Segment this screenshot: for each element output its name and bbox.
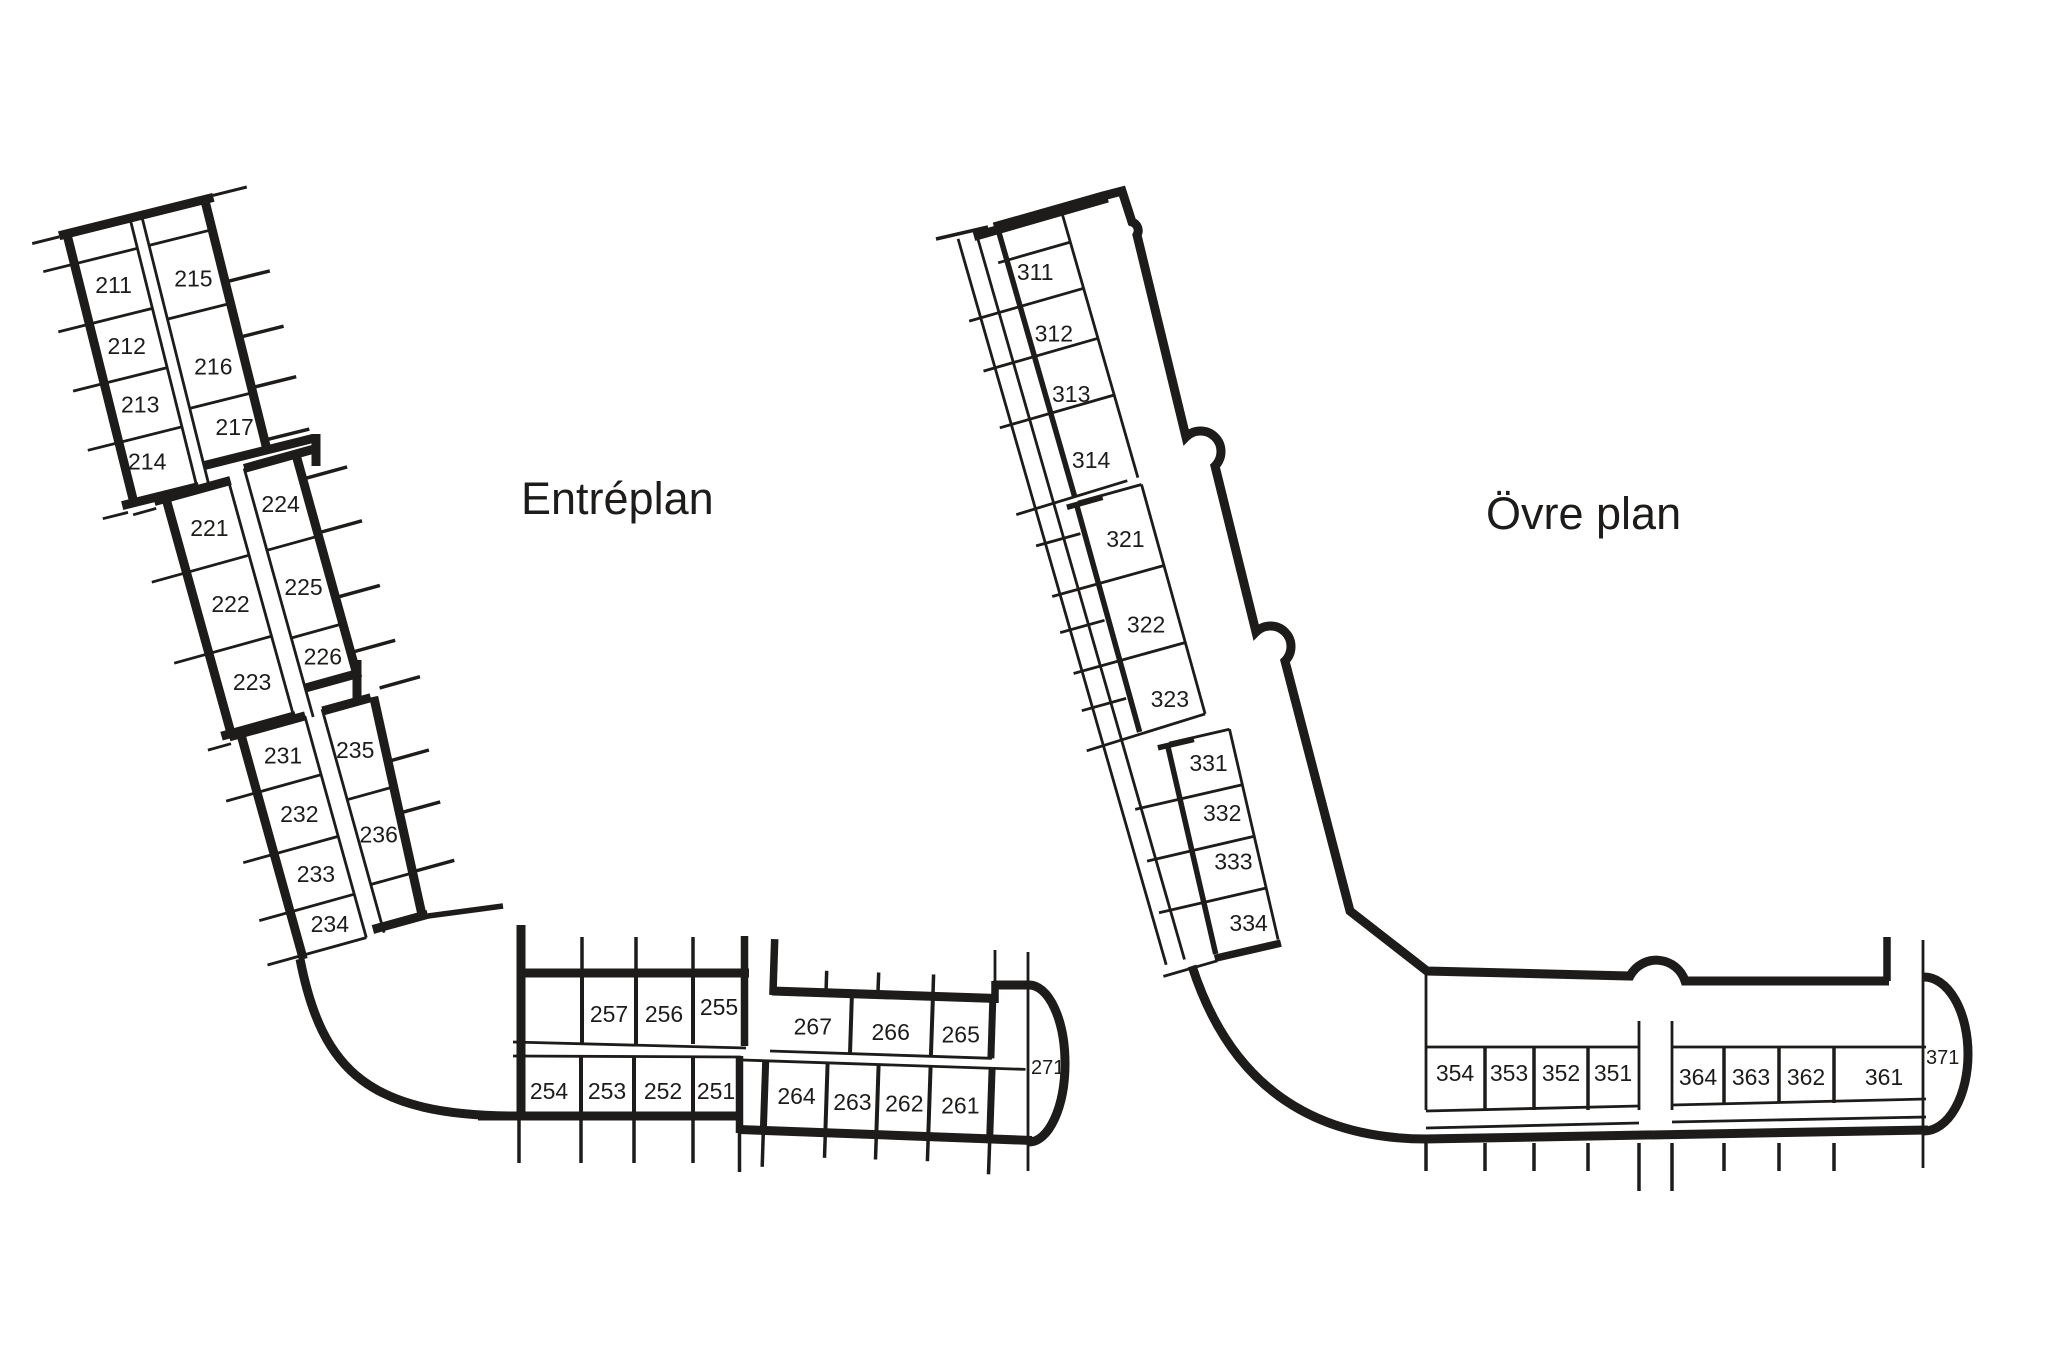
svg-text:255: 255 [700, 994, 738, 1020]
svg-text:331: 331 [1189, 750, 1227, 776]
svg-text:321: 321 [1106, 526, 1144, 552]
svg-text:216: 216 [194, 354, 232, 380]
svg-text:371: 371 [1926, 1047, 1959, 1069]
svg-text:224: 224 [261, 491, 300, 517]
svg-text:264: 264 [777, 1083, 816, 1109]
svg-text:Entréplan: Entréplan [521, 473, 714, 524]
svg-text:311: 311 [1017, 259, 1054, 285]
svg-text:232: 232 [280, 801, 318, 827]
svg-text:362: 362 [1787, 1064, 1825, 1090]
svg-text:314: 314 [1072, 447, 1111, 473]
svg-text:354: 354 [1436, 1060, 1475, 1086]
svg-text:211: 211 [95, 272, 132, 298]
svg-text:313: 313 [1052, 381, 1090, 407]
svg-text:226: 226 [304, 643, 342, 669]
svg-text:257: 257 [590, 1001, 628, 1027]
svg-text:353: 353 [1490, 1060, 1528, 1086]
svg-text:334: 334 [1229, 910, 1268, 936]
svg-text:271: 271 [1031, 1057, 1064, 1079]
svg-text:256: 256 [645, 1001, 683, 1027]
svg-text:364: 364 [1679, 1064, 1718, 1090]
svg-text:221: 221 [190, 515, 228, 541]
svg-text:233: 233 [297, 861, 335, 887]
svg-text:214: 214 [128, 448, 167, 474]
svg-text:265: 265 [942, 1021, 980, 1047]
svg-text:213: 213 [121, 391, 159, 417]
svg-text:261: 261 [941, 1092, 979, 1118]
svg-text:234: 234 [311, 911, 350, 937]
svg-text:352: 352 [1542, 1060, 1580, 1086]
svg-text:322: 322 [1127, 611, 1165, 637]
svg-text:253: 253 [588, 1078, 626, 1104]
svg-text:251: 251 [697, 1078, 735, 1104]
svg-text:332: 332 [1203, 800, 1241, 826]
svg-text:Övre plan: Övre plan [1486, 488, 1681, 539]
svg-text:212: 212 [108, 333, 146, 359]
svg-text:223: 223 [233, 669, 271, 695]
svg-text:312: 312 [1035, 320, 1073, 346]
svg-text:222: 222 [211, 591, 249, 617]
svg-text:235: 235 [336, 737, 374, 763]
svg-text:231: 231 [264, 742, 302, 768]
svg-text:361: 361 [1865, 1064, 1903, 1090]
svg-text:363: 363 [1732, 1064, 1770, 1090]
svg-text:215: 215 [174, 266, 212, 292]
svg-text:254: 254 [530, 1078, 569, 1104]
svg-text:266: 266 [872, 1019, 910, 1045]
svg-text:252: 252 [644, 1078, 682, 1104]
svg-text:217: 217 [215, 414, 253, 440]
svg-text:262: 262 [885, 1091, 923, 1117]
svg-text:323: 323 [1151, 686, 1189, 712]
svg-text:225: 225 [284, 574, 322, 600]
svg-text:351: 351 [1594, 1060, 1632, 1086]
svg-text:263: 263 [833, 1089, 871, 1115]
svg-text:333: 333 [1214, 849, 1252, 875]
svg-text:267: 267 [794, 1013, 832, 1039]
svg-text:236: 236 [360, 822, 398, 848]
